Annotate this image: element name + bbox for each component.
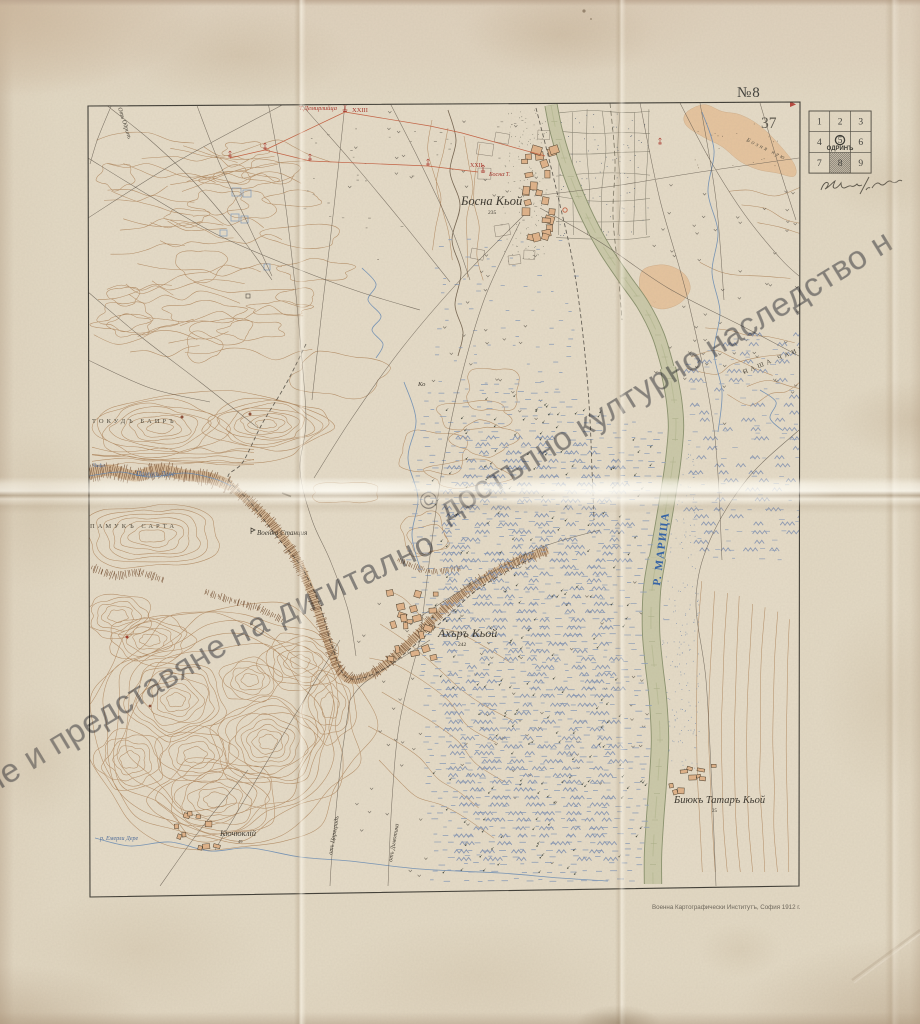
svg-text:4: 4 [817, 138, 822, 148]
svg-text:ОДРИНЪ: ОДРИНЪ [827, 146, 854, 152]
svg-text:235: 235 [488, 210, 497, 216]
svg-text:XXIII: XXIII [352, 107, 368, 114]
svg-text:Т.Демирлийца: Т.Демирлийца [299, 105, 337, 112]
svg-text:на дигитално: на дигитално [224, 524, 442, 654]
svg-text:9: 9 [858, 159, 863, 169]
svg-text:Босна Т.: Босна Т. [488, 172, 510, 178]
svg-text:Военна Станция: Военна Станция [257, 529, 307, 537]
svg-text:ТОКУДЪ БАИРЪ: ТОКУДЪ БАИРЪ [92, 418, 177, 425]
svg-text:Памукъ Дере: Памукъ Дере [135, 470, 175, 478]
svg-text:Отъ Одринъ: Отъ Одринъ [116, 106, 133, 139]
svg-text:©: © [415, 485, 444, 517]
svg-text:р. Емерли Дере: р. Емерли Дере [99, 836, 139, 842]
svg-text:ПАША ЧАИРЪ: ПАША ЧАИРЪ [742, 342, 813, 376]
svg-text:242: 242 [458, 642, 467, 648]
svg-text:Босна Кьой: Босна Кьой [460, 194, 523, 208]
svg-text:Военна Картографически Институ: Военна Картографически Институтъ, София … [652, 904, 801, 911]
svg-text:6: 6 [858, 138, 863, 148]
svg-text:2: 2 [838, 118, 843, 128]
svg-text:49: 49 [238, 839, 243, 844]
svg-text:XXII: XXII [470, 163, 483, 169]
svg-text:37: 37 [761, 115, 777, 132]
svg-text:Кючюклій: Кючюклій [219, 828, 257, 838]
svg-text:не и представяне: не и представяне [0, 627, 234, 802]
svg-text:7: 7 [817, 159, 822, 169]
svg-text:8: 8 [838, 159, 843, 169]
svg-text:Чифл.: Чифл. [92, 462, 106, 469]
svg-text:3: 3 [858, 118, 863, 128]
svg-text:ПАМУКЪ САРТА: ПАМУКЪ САРТА [90, 523, 177, 530]
svg-text:Бозня кую: Бозня кую [744, 137, 787, 162]
svg-text:1: 1 [817, 118, 822, 128]
svg-text:25: 25 [712, 809, 718, 814]
svg-text:Ко: Ко [417, 381, 426, 388]
svg-text:Биюкъ Татаръ Кьой: Биюкъ Татаръ Кьой [673, 795, 766, 806]
svg-text:Ахъръ Кьой: Ахъръ Кьой [437, 626, 497, 640]
svg-text:5: 5 [838, 136, 843, 146]
svg-text:№8: №8 [737, 85, 761, 101]
svg-text:Р. МАРИЦА: Р. МАРИЦА [651, 511, 672, 586]
svg-text:отъ Царяградъ: отъ Царяградъ [327, 815, 341, 855]
svg-text:достъпно културно наследство н: достъпно културно наследство н [432, 223, 899, 529]
svg-text:отъ Димотика: отъ Димотика [388, 823, 401, 862]
